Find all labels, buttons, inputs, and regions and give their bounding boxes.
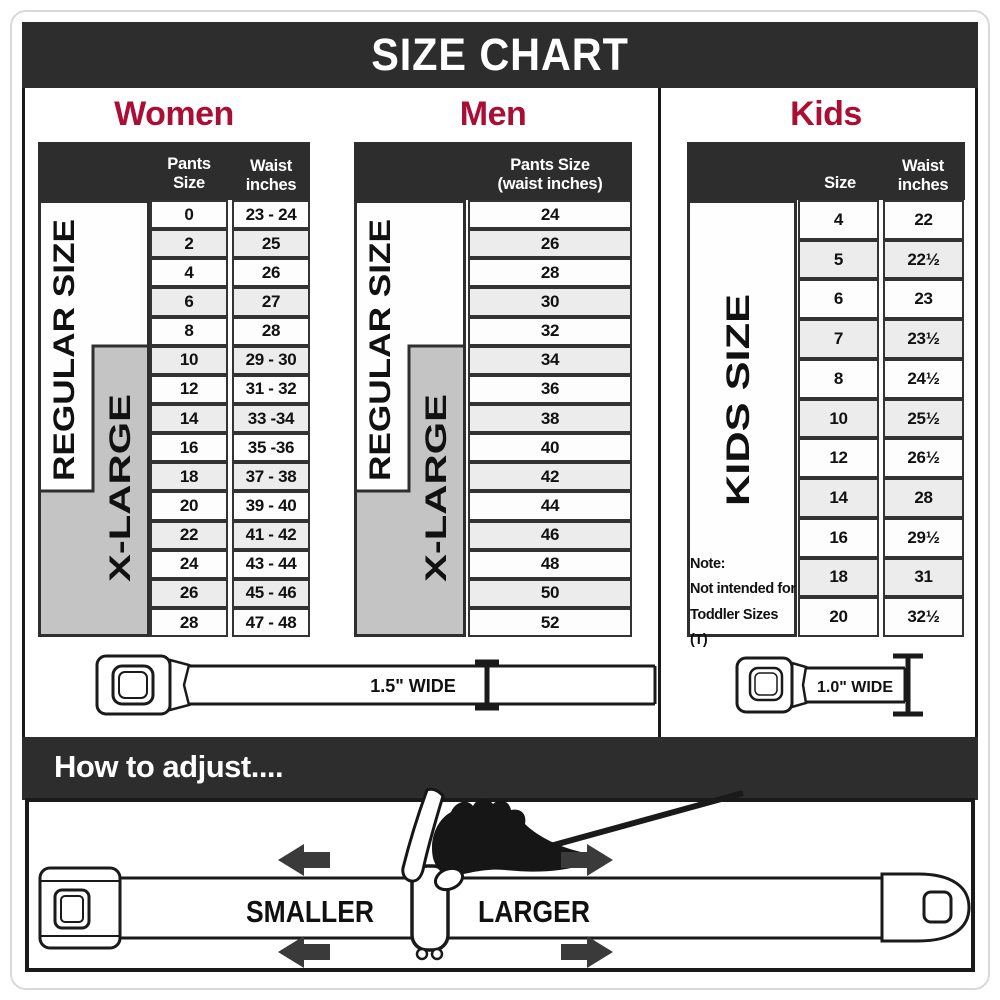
women-size-region-graphic: REGULAR SIZE X-LARGE xyxy=(38,200,150,637)
waist-cell: 41 - 42 xyxy=(232,521,310,550)
table-row: 18 31 xyxy=(798,558,964,598)
pants-size-cell: 10 xyxy=(150,346,228,375)
table-row: 12 26½ xyxy=(798,438,964,478)
women-heading: Women xyxy=(38,95,310,134)
men-heading: Men xyxy=(354,95,632,134)
kids-heading: Kids xyxy=(687,95,965,134)
pants-size-cell: 52 xyxy=(468,608,632,637)
title-bar: SIZE CHART xyxy=(22,22,978,88)
table-row: 6 23 xyxy=(798,279,964,319)
men-size-table: Pants Size (waist inches) REGULAR SIZE X… xyxy=(354,142,632,637)
pants-size-cell: 22 xyxy=(150,521,228,550)
size-cell: 8 xyxy=(798,359,879,399)
larger-label: LARGER xyxy=(478,894,590,929)
men-pants-size-header: Pants Size (waist inches) xyxy=(468,156,632,194)
pants-size-cell: 26 xyxy=(150,579,228,608)
men-size-rows: 24 26 28 30 32 xyxy=(468,200,632,637)
pants-size-cell: 32 xyxy=(468,317,632,346)
pants-size-cell: 34 xyxy=(468,346,632,375)
size-cell: 6 xyxy=(798,279,879,319)
waist-cell: 23½ xyxy=(883,319,964,359)
men-size-region-graphic: REGULAR SIZE X-LARGE xyxy=(354,200,466,637)
pants-size-cell: 20 xyxy=(150,491,228,520)
waist-cell: 23 - 24 xyxy=(232,200,310,229)
pants-size-cell: 40 xyxy=(468,433,632,462)
waist-cell: 39 - 40 xyxy=(232,491,310,520)
table-row: 14 33 -34 xyxy=(150,404,310,433)
table-row: 28 xyxy=(468,258,632,287)
women-size-rows: 0 23 - 24 2 25 4 26 6 2 xyxy=(150,200,310,637)
table-row: 38 xyxy=(468,404,632,433)
kids-belt-width-label: 1.0" WIDE xyxy=(817,679,893,696)
pants-size-cell: 24 xyxy=(150,550,228,579)
width-measure-icon xyxy=(893,656,923,714)
pants-size-cell: 14 xyxy=(150,404,228,433)
waist-cell: 43 - 44 xyxy=(232,550,310,579)
kids-size-label: KIDS SIZE xyxy=(720,294,756,506)
size-cell: 7 xyxy=(798,319,879,359)
kids-table-body: KIDS SIZE Note: Not intended for Toddler… xyxy=(687,200,965,637)
size-cell: 10 xyxy=(798,399,879,439)
adjust-illustration: SMALLER LARGER xyxy=(25,760,975,975)
pants-size-cell: 0 xyxy=(150,200,228,229)
waist-cell: 31 xyxy=(883,558,964,598)
waist-cell: 29½ xyxy=(883,518,964,558)
table-row: 44 xyxy=(468,491,632,520)
waist-cell: 28 xyxy=(883,478,964,518)
waist-cell: 45 - 46 xyxy=(232,579,310,608)
table-row: 32 xyxy=(468,317,632,346)
pants-size-cell: 38 xyxy=(468,404,632,433)
women-size-table: Pants Size Waist inches REGULAR SIZE X-L… xyxy=(38,142,310,637)
pants-size-cell: 36 xyxy=(468,375,632,404)
pants-size-cell: 4 xyxy=(150,258,228,287)
size-chart-page: SIZE CHART Women Men Kids Pants Size Wai… xyxy=(0,0,1000,1000)
table-row: 34 xyxy=(468,346,632,375)
table-row: 2 25 xyxy=(150,229,310,258)
size-cell: 5 xyxy=(798,240,879,280)
pants-size-cell: 44 xyxy=(468,491,632,520)
table-row: 40 xyxy=(468,433,632,462)
table-row: 6 27 xyxy=(150,287,310,316)
kids-waist-header: Waist inches xyxy=(884,157,962,195)
waist-cell: 24½ xyxy=(883,359,964,399)
seatbelt-buckle-icon xyxy=(40,868,120,948)
women-waist-header: Waist inches xyxy=(232,157,310,195)
table-row: 8 28 xyxy=(150,317,310,346)
table-row: 36 xyxy=(468,375,632,404)
table-row: 4 26 xyxy=(150,258,310,287)
size-cell: 4 xyxy=(798,200,879,240)
kids-size-rows: 4 22 5 22½ 6 23 7 23½ xyxy=(798,200,964,637)
table-row: 26 xyxy=(468,229,632,258)
waist-cell: 28 xyxy=(232,317,310,346)
table-row: 0 23 - 24 xyxy=(150,200,310,229)
size-cell: 14 xyxy=(798,478,879,518)
waist-cell: 37 - 38 xyxy=(232,462,310,491)
table-row: 24 43 - 44 xyxy=(150,550,310,579)
table-row: 42 xyxy=(468,462,632,491)
waist-cell: 31 - 32 xyxy=(232,375,310,404)
table-row: 16 29½ xyxy=(798,518,964,558)
table-row: 12 31 - 32 xyxy=(150,375,310,404)
waist-cell: 35 -36 xyxy=(232,433,310,462)
waist-cell: 29 - 30 xyxy=(232,346,310,375)
men-table-body: REGULAR SIZE X-LARGE 24 26 28 xyxy=(354,200,632,637)
men-regular-label: REGULAR SIZE xyxy=(364,219,397,481)
table-row: 28 47 - 48 xyxy=(150,608,310,637)
kids-size-header: Size xyxy=(798,174,882,193)
table-row: 14 28 xyxy=(798,478,964,518)
seatbelt-buckle-icon xyxy=(97,656,189,714)
waist-cell: 26½ xyxy=(883,438,964,478)
size-cell: 18 xyxy=(798,558,879,598)
pants-size-cell: 46 xyxy=(468,521,632,550)
table-row: 30 xyxy=(468,287,632,316)
table-row: 7 23½ xyxy=(798,319,964,359)
kids-note: Note: Not intended for Toddler Sizes (T) xyxy=(690,552,796,654)
pants-size-cell: 28 xyxy=(150,608,228,637)
table-row: 24 xyxy=(468,200,632,229)
pants-size-cell: 50 xyxy=(468,579,632,608)
waist-cell: 26 xyxy=(232,258,310,287)
men-xlarge-label: X-LARGE xyxy=(420,394,453,582)
page-title: SIZE CHART xyxy=(371,29,629,81)
women-regular-label: REGULAR SIZE xyxy=(48,219,81,481)
pants-size-cell: 2 xyxy=(150,229,228,258)
pants-size-cell: 48 xyxy=(468,550,632,579)
pants-size-cell: 18 xyxy=(150,462,228,491)
pants-size-cell: 42 xyxy=(468,462,632,491)
waist-cell: 32½ xyxy=(883,597,964,637)
table-row: 22 41 - 42 xyxy=(150,521,310,550)
waist-cell: 25½ xyxy=(883,399,964,439)
pants-size-cell: 26 xyxy=(468,229,632,258)
size-cell: 20 xyxy=(798,597,879,637)
pants-size-cell: 24 xyxy=(468,200,632,229)
table-row: 8 24½ xyxy=(798,359,964,399)
kids-note-line2: Not intended for xyxy=(690,577,796,602)
pants-size-cell: 8 xyxy=(150,317,228,346)
pants-size-cell: 28 xyxy=(468,258,632,287)
table-row: 5 22½ xyxy=(798,240,964,280)
kids-note-line1: Note: xyxy=(690,552,796,577)
table-row: 26 45 - 46 xyxy=(150,579,310,608)
kids-table-header: Size Waist inches xyxy=(687,142,965,200)
men-table-header: Pants Size (waist inches) xyxy=(354,142,632,200)
table-row: 4 22 xyxy=(798,200,964,240)
width-measure-icon xyxy=(475,662,499,708)
size-cell: 12 xyxy=(798,438,879,478)
table-row: 20 39 - 40 xyxy=(150,491,310,520)
table-row: 48 xyxy=(468,550,632,579)
seatbelt-buckle-icon xyxy=(737,658,806,712)
women-pants-size-header: Pants Size xyxy=(150,155,228,193)
women-table-body: REGULAR SIZE X-LARGE 0 23 - 24 2 25 xyxy=(38,200,310,637)
size-cell: 16 xyxy=(798,518,879,558)
waist-cell: 27 xyxy=(232,287,310,316)
kids-size-table: Size Waist inches KIDS SIZE Note: Not in… xyxy=(687,142,965,637)
waist-cell: 25 xyxy=(232,229,310,258)
waist-cell: 33 -34 xyxy=(232,404,310,433)
table-row: 20 32½ xyxy=(798,597,964,637)
table-row: 50 xyxy=(468,579,632,608)
table-row: 18 37 - 38 xyxy=(150,462,310,491)
pants-size-cell: 6 xyxy=(150,287,228,316)
table-row: 46 xyxy=(468,521,632,550)
table-row: 10 25½ xyxy=(798,399,964,439)
table-row: 16 35 -36 xyxy=(150,433,310,462)
table-row: 10 29 - 30 xyxy=(150,346,310,375)
women-table-header: Pants Size Waist inches xyxy=(38,142,310,200)
pants-size-cell: 16 xyxy=(150,433,228,462)
panel-divider xyxy=(658,88,661,737)
belt-tip xyxy=(882,874,969,941)
waist-cell: 22½ xyxy=(883,240,964,280)
kids-belt-illustration: 1.0" WIDE xyxy=(695,646,965,726)
waist-cell: 23 xyxy=(883,279,964,319)
smaller-label: SMALLER xyxy=(246,894,374,929)
women-xlarge-label: X-LARGE xyxy=(104,394,137,582)
pants-size-cell: 30 xyxy=(468,287,632,316)
adult-belt-illustration: 1.5" WIDE xyxy=(58,646,658,726)
adult-belt-width-label: 1.5" WIDE xyxy=(370,676,456,696)
waist-cell: 47 - 48 xyxy=(232,608,310,637)
table-row: 52 xyxy=(468,608,632,637)
pants-size-cell: 12 xyxy=(150,375,228,404)
waist-cell: 22 xyxy=(883,200,964,240)
